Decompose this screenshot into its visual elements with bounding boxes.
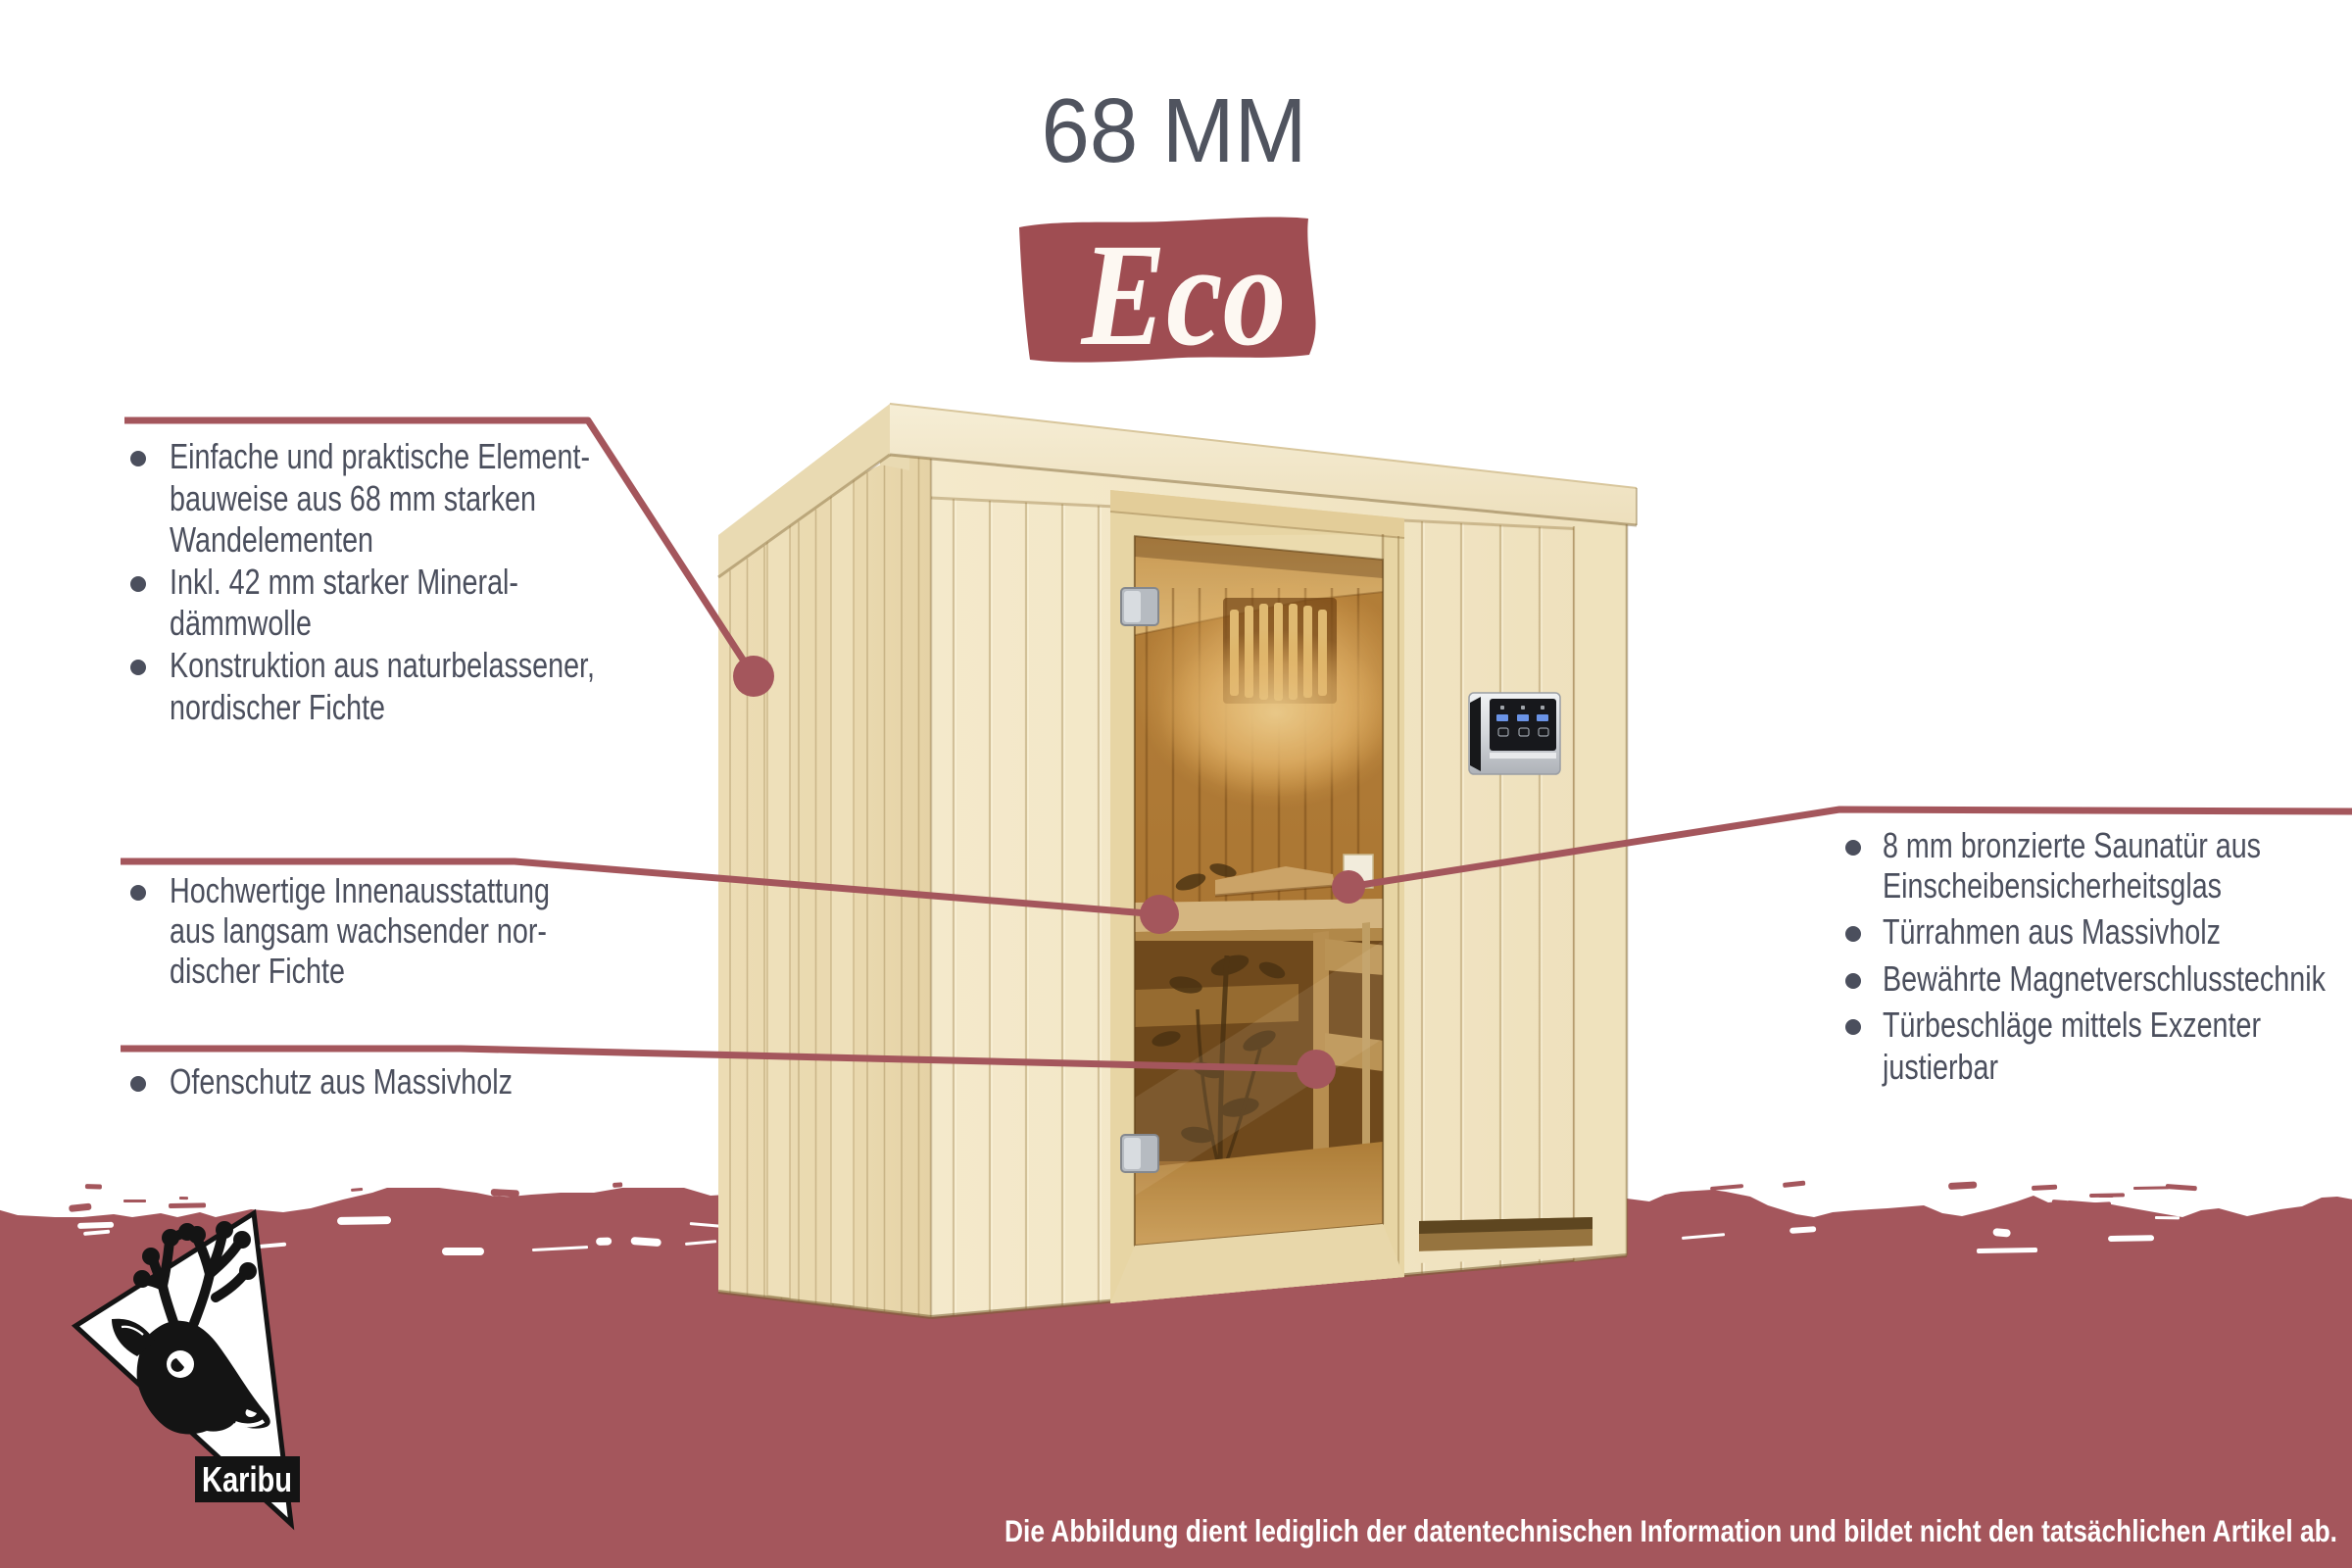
- svg-text:dämmwolle: dämmwolle: [170, 603, 312, 643]
- svg-text:Bewährte Magnetverschlusstechn: Bewährte Magnetverschlusstechnik: [1883, 958, 2327, 999]
- svg-text:Einfache und praktische Elemen: Einfache und praktische Element-: [170, 436, 590, 476]
- svg-text:Karibu: Karibu: [202, 1459, 292, 1499]
- svg-text:68 MM: 68 MM: [1042, 79, 1307, 181]
- svg-text:Die Abbildung dient lediglich: Die Abbildung dient lediglich der datent…: [1004, 1513, 2337, 1548]
- svg-text:Türrahmen aus Massivholz: Türrahmen aus Massivholz: [1883, 911, 2221, 952]
- svg-text:8 mm bronzierte Saunatür aus: 8 mm bronzierte Saunatür aus: [1883, 825, 2261, 865]
- svg-text:Inkl. 42 mm starker Mineral-: Inkl. 42 mm starker Mineral-: [170, 562, 518, 602]
- svg-text:bauweise aus 68 mm starken: bauweise aus 68 mm starken: [170, 478, 536, 518]
- svg-text:Einscheibensicherheitsglas: Einscheibensicherheitsglas: [1883, 865, 2222, 906]
- svg-text:Konstruktion aus naturbelassen: Konstruktion aus naturbelassener,: [170, 645, 595, 685]
- svg-text:discher Fichte: discher Fichte: [170, 951, 345, 991]
- svg-text:Wandelementen: Wandelementen: [170, 519, 373, 560]
- svg-text:nordischer Fichte: nordischer Fichte: [170, 687, 385, 727]
- svg-text:Eco: Eco: [1080, 214, 1287, 376]
- svg-text:justierbar: justierbar: [1882, 1047, 1998, 1087]
- svg-text:Hochwertige Innenausstattung: Hochwertige Innenausstattung: [170, 870, 550, 910]
- svg-text:Ofenschutz aus Massivholz: Ofenschutz aus Massivholz: [170, 1061, 513, 1102]
- svg-text:Türbeschläge mittels Exzenter: Türbeschläge mittels Exzenter: [1883, 1004, 2261, 1045]
- svg-text:aus langsam wachsender nor-: aus langsam wachsender nor-: [170, 910, 547, 951]
